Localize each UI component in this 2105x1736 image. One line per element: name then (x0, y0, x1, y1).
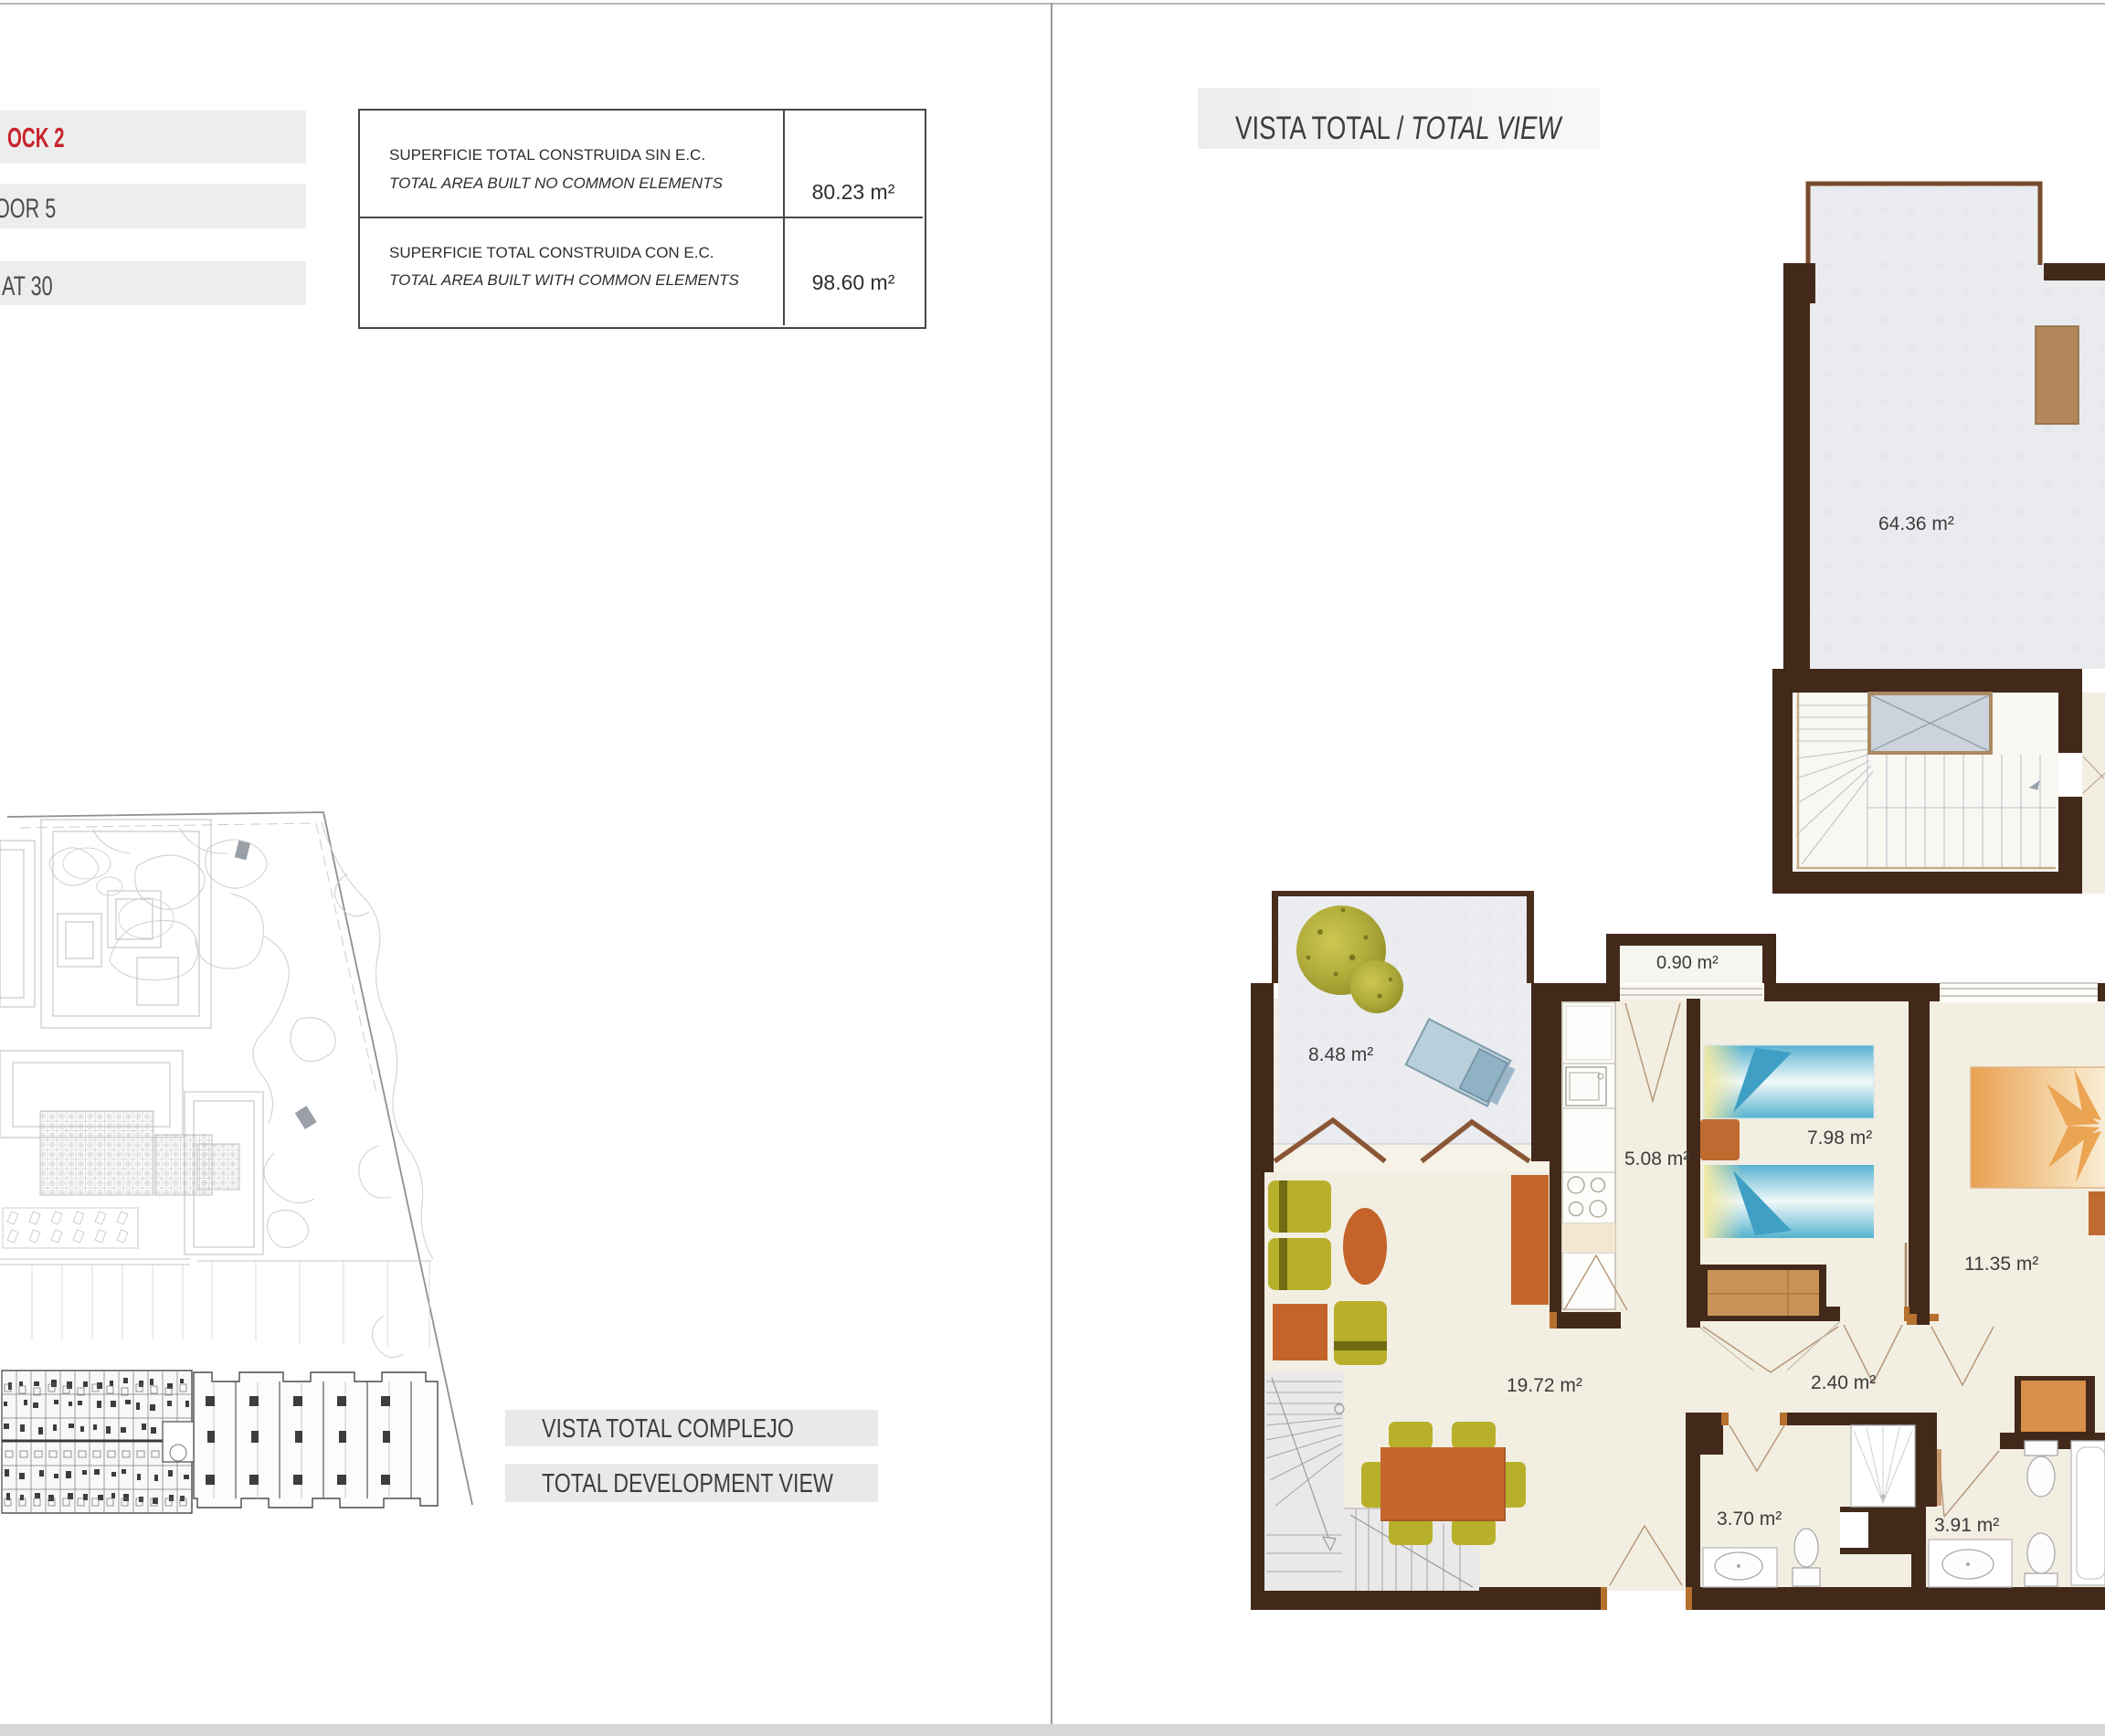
svg-text:8.48 m²: 8.48 m² (1308, 1044, 1373, 1065)
svg-text:3.91 m²: 3.91 m² (1934, 1515, 1999, 1536)
svg-text:11.35 m²: 11.35 m² (1964, 1254, 2038, 1275)
svg-text:2.40 m²: 2.40 m² (1811, 1372, 1876, 1393)
svg-text:64.36 m²: 64.36 m² (1878, 513, 1954, 535)
svg-text:5.08 m²: 5.08 m² (1624, 1149, 1689, 1170)
svg-text:3.70 m²: 3.70 m² (1717, 1508, 1782, 1530)
svg-text:19.72 m²: 19.72 m² (1507, 1375, 1582, 1396)
svg-text:7.98 m²: 7.98 m² (1807, 1127, 1872, 1149)
svg-text:0.90 m²: 0.90 m² (1656, 953, 1719, 973)
